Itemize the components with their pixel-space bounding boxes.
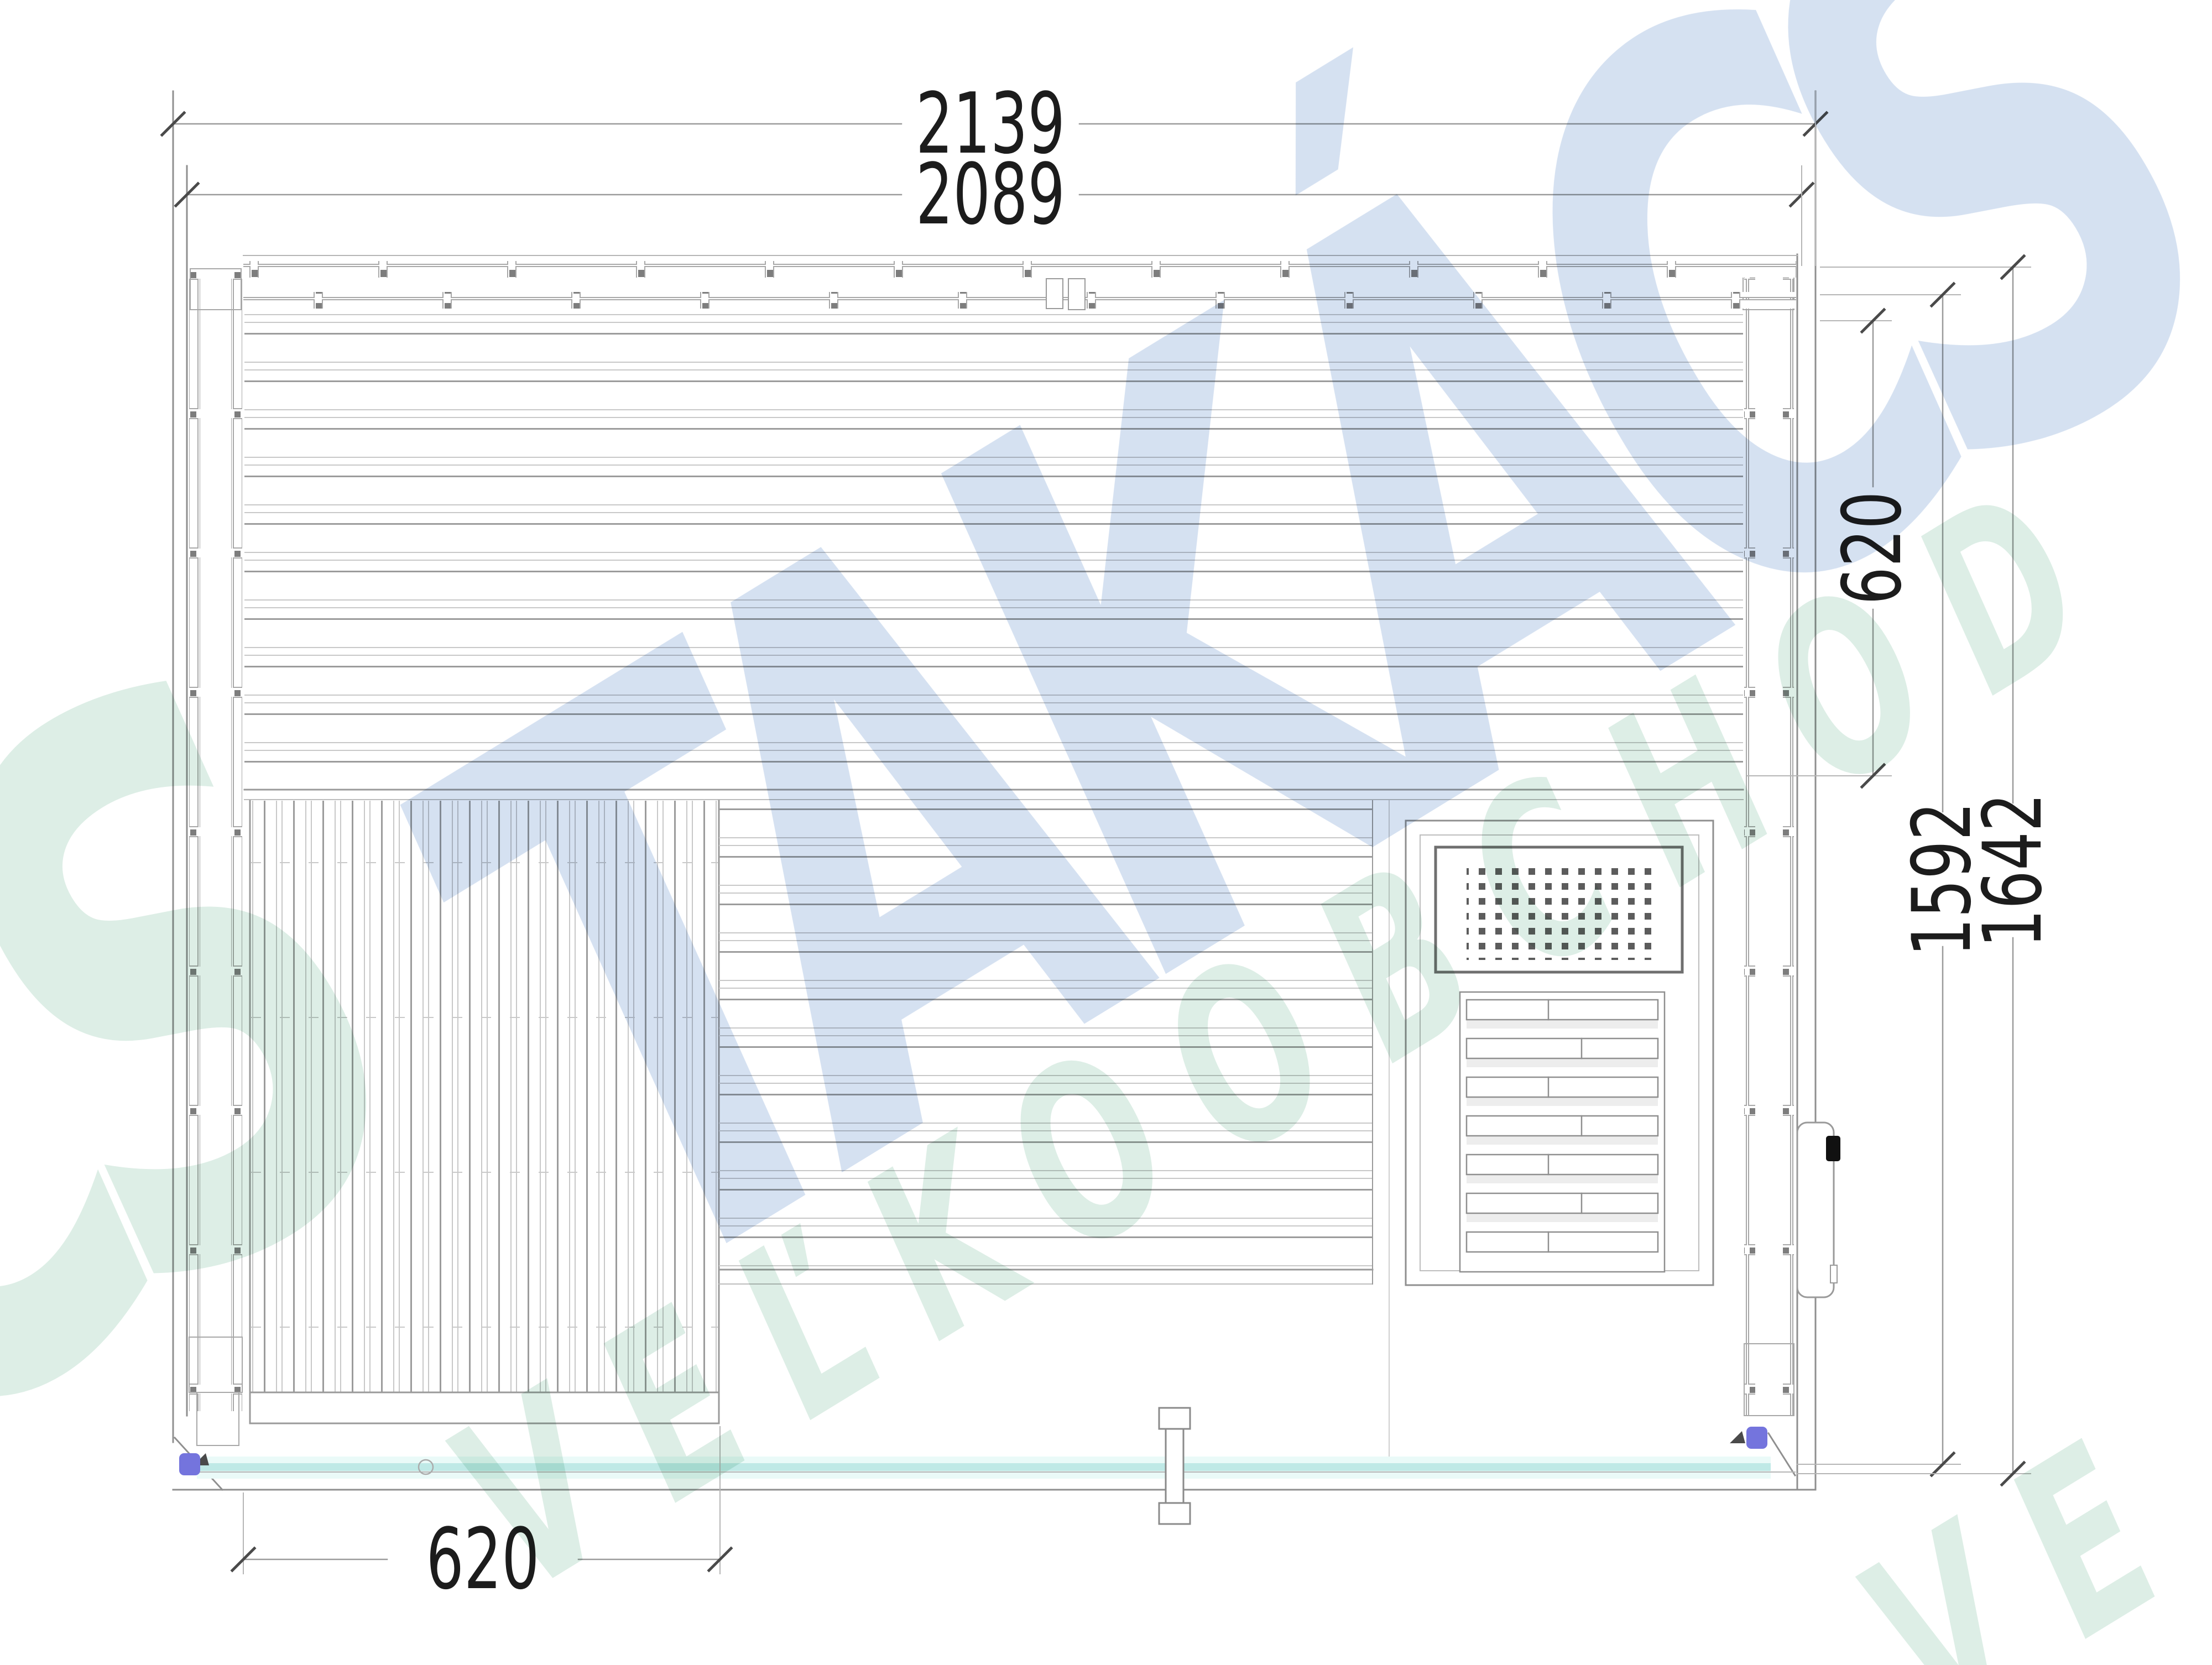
dim-label-right-outer: 1642: [1966, 793, 2060, 948]
dim-label-top-inner: 2089: [916, 145, 1065, 243]
glass-front: [179, 1427, 1795, 1479]
hinge-marker-right: [1746, 1427, 1767, 1449]
sauna-floorplan-drawing: 2139 2089 620 1592 1642 620 TAKÁCS TAKÁC…: [0, 0, 2212, 1665]
door-handle-knob: [1826, 1136, 1840, 1161]
door-leaf: [1797, 1123, 1840, 1297]
watermark-word2-partial: VE: [1820, 1370, 2212, 1665]
hinge-pivot-right: [1730, 1431, 1745, 1443]
